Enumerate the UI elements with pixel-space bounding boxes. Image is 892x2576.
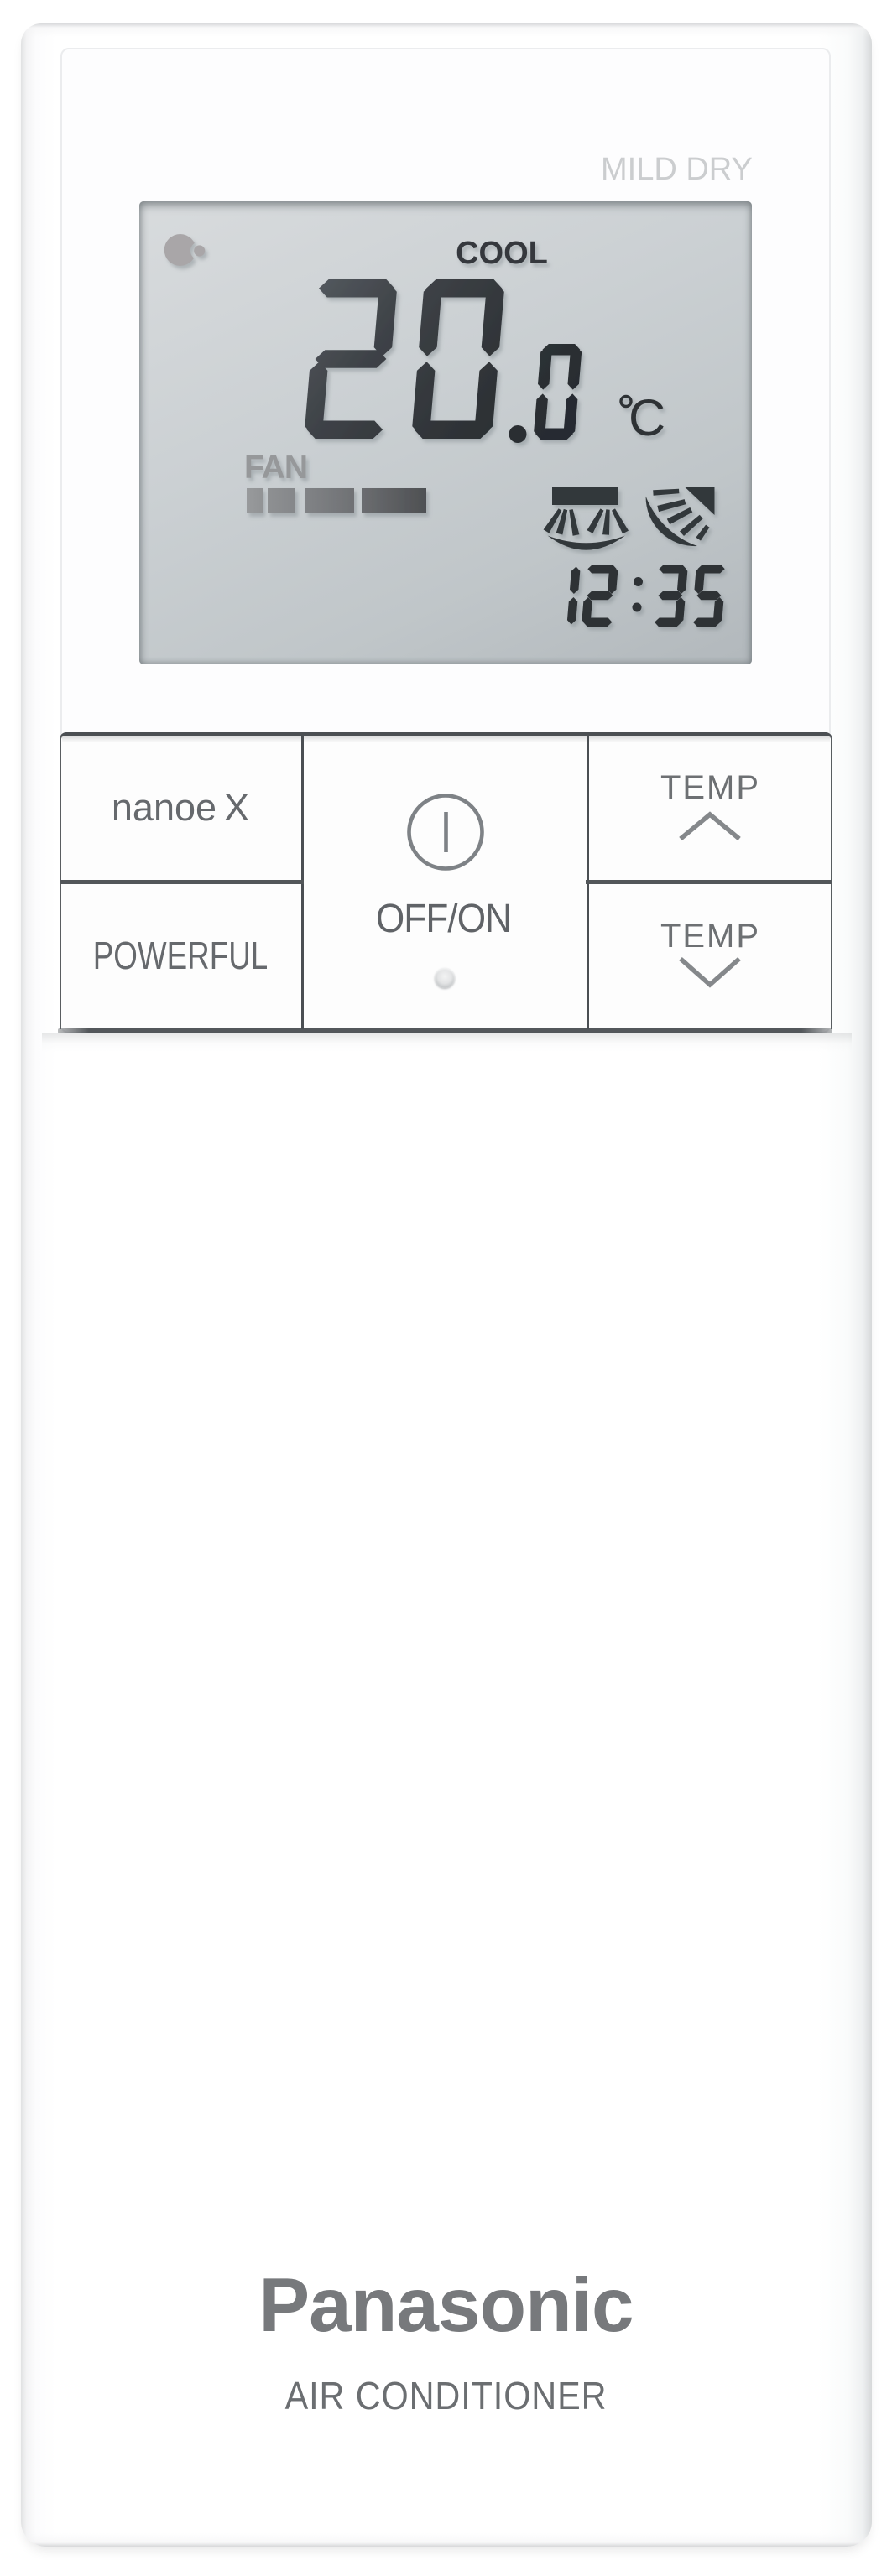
- svg-text:C: C: [629, 389, 665, 446]
- svg-text:COOL: COOL: [456, 236, 548, 271]
- svg-text:FAN: FAN: [244, 450, 307, 486]
